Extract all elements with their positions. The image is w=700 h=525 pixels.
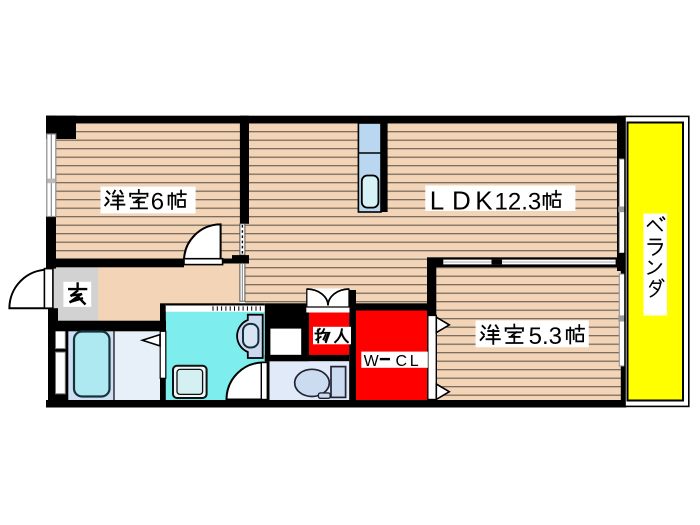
svg-text:L: L xyxy=(410,353,419,370)
svg-text:W: W xyxy=(364,353,380,370)
svg-text:D: D xyxy=(452,186,471,216)
svg-text:6: 6 xyxy=(151,189,164,216)
svg-text:5.3: 5.3 xyxy=(529,323,562,350)
svg-text:L: L xyxy=(430,186,444,216)
svg-text:12.3: 12.3 xyxy=(495,189,542,216)
svg-text:C: C xyxy=(396,353,408,370)
svg-text:K: K xyxy=(475,186,493,216)
